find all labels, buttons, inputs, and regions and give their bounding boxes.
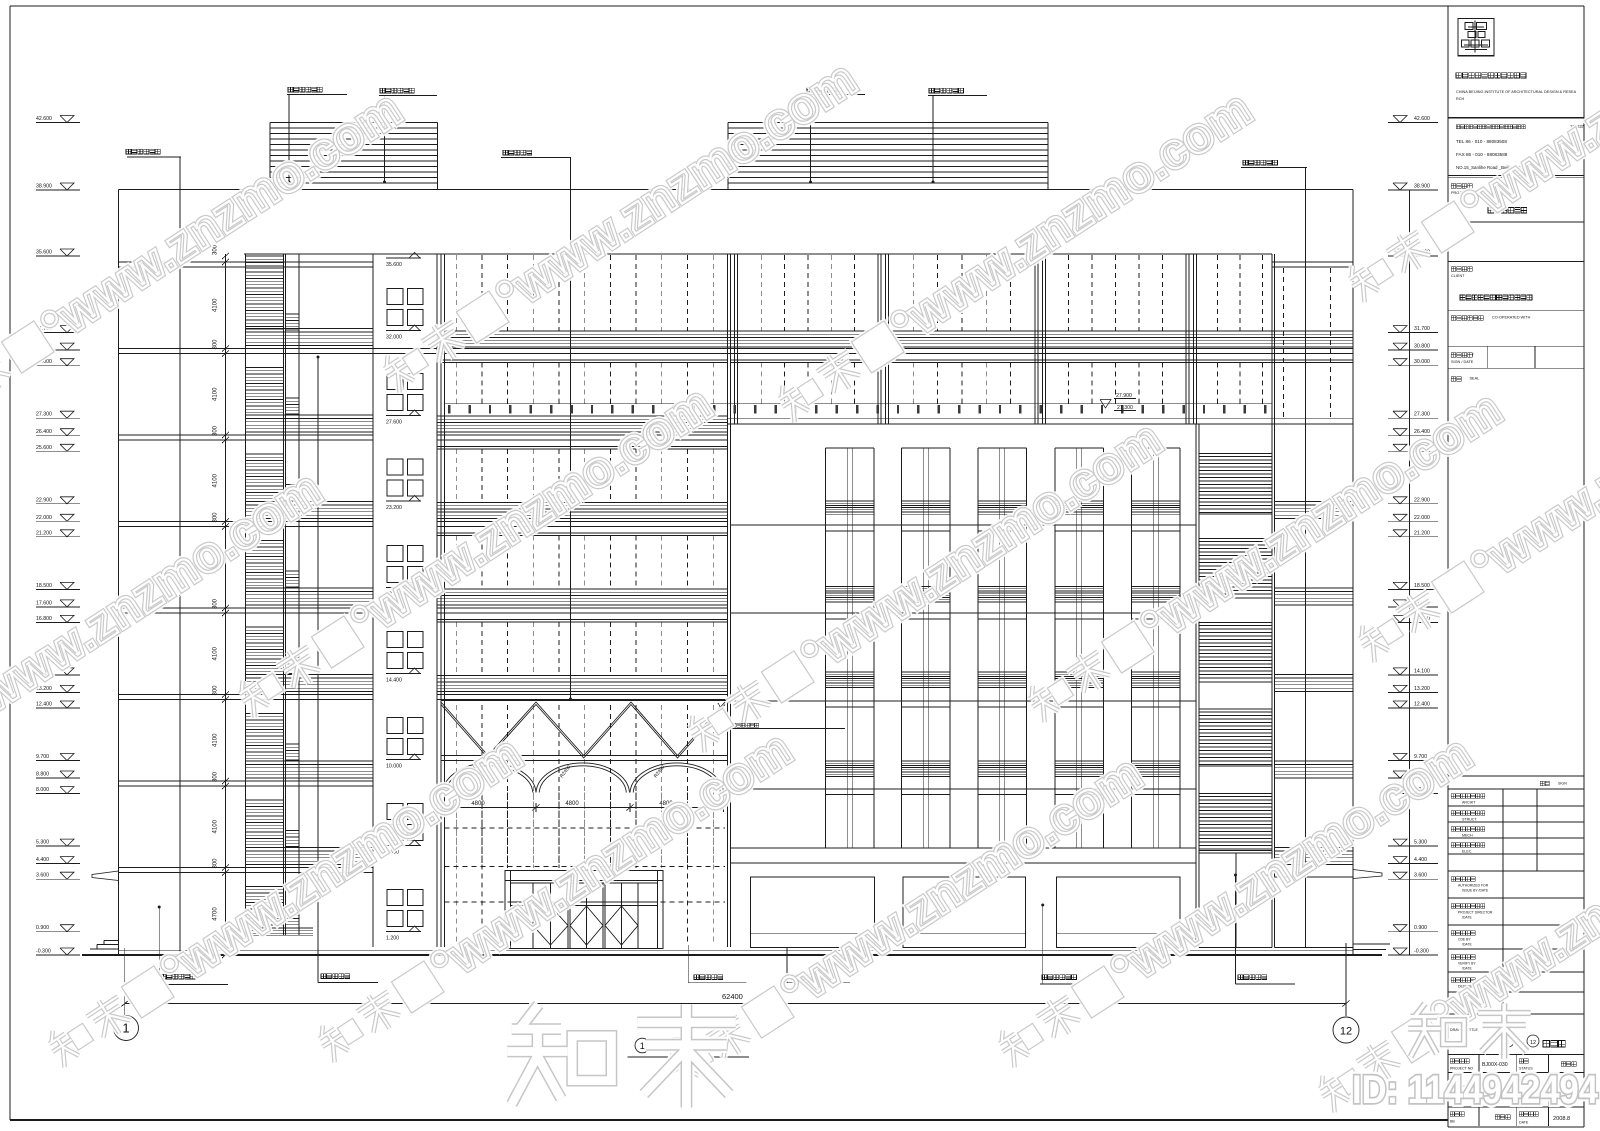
svg-text:27.900: 27.900	[1116, 393, 1132, 399]
svg-text:4100: 4100	[213, 646, 219, 660]
svg-text:25.600: 25.600	[36, 445, 52, 451]
svg-text:23.200: 23.200	[386, 505, 402, 511]
svg-text:SEAL: SEAL	[1470, 377, 1480, 381]
svg-text:SIGN / DATE: SIGN / DATE	[1451, 360, 1474, 364]
svg-text:4800: 4800	[565, 801, 579, 807]
svg-text:3.600: 3.600	[1414, 873, 1427, 879]
svg-text:-0.300: -0.300	[1414, 949, 1429, 955]
svg-text:300: 300	[213, 598, 219, 609]
svg-text:AUTHORIZED FOR: AUTHORIZED FOR	[1458, 884, 1489, 888]
svg-text:5.300: 5.300	[1414, 840, 1427, 846]
svg-text:4100: 4100	[213, 733, 219, 747]
svg-text:32.000: 32.000	[386, 335, 402, 341]
svg-text:2008.8: 2008.8	[1553, 1116, 1570, 1122]
svg-text:SIGN: SIGN	[1558, 782, 1567, 786]
svg-text:CLIENT: CLIENT	[1451, 274, 1465, 278]
svg-text:MECH: MECH	[1462, 834, 1473, 838]
svg-text:12.400: 12.400	[1414, 702, 1430, 708]
svg-text:16.800: 16.800	[36, 616, 52, 622]
svg-text:300: 300	[213, 685, 219, 696]
svg-text:/DATE: /DATE	[1462, 943, 1472, 947]
svg-text:42.600: 42.600	[1414, 116, 1430, 122]
svg-text:22.000: 22.000	[1414, 515, 1430, 521]
svg-text:5.300: 5.300	[36, 840, 49, 846]
svg-text:8.800: 8.800	[36, 772, 49, 778]
svg-text:4100: 4100	[213, 298, 219, 312]
svg-text:18.500: 18.500	[1414, 583, 1430, 589]
svg-text:3.600: 3.600	[36, 873, 49, 879]
svg-text:8.000: 8.000	[36, 787, 49, 793]
svg-text:300: 300	[213, 339, 219, 350]
svg-text:10.000: 10.000	[386, 764, 402, 770]
svg-text:1: 1	[640, 1041, 645, 1051]
svg-text:9.700: 9.700	[36, 754, 49, 760]
svg-text:21.200: 21.200	[36, 530, 52, 536]
svg-text:/DATE: /DATE	[1462, 916, 1472, 920]
svg-text:0.900: 0.900	[1414, 925, 1427, 931]
svg-text:1.200: 1.200	[386, 936, 399, 942]
svg-text:22.000: 22.000	[36, 515, 52, 521]
svg-text:22.900: 22.900	[1414, 497, 1430, 503]
svg-text:17.600: 17.600	[36, 600, 52, 606]
svg-text:-0.300: -0.300	[36, 949, 51, 955]
svg-text:0.900: 0.900	[36, 925, 49, 931]
svg-text:12: 12	[1340, 1026, 1352, 1038]
svg-text:14.100: 14.100	[1414, 668, 1430, 674]
svg-text:42.600: 42.600	[36, 116, 52, 122]
svg-text:300: 300	[213, 425, 219, 436]
svg-text:ELEC.: ELEC.	[1462, 850, 1472, 854]
svg-text:CDE BY: CDE BY	[1458, 938, 1471, 942]
svg-text:4.400: 4.400	[36, 857, 49, 863]
svg-text:CO-OPERATED WITH: CO-OPERATED WITH	[1492, 316, 1531, 320]
svg-text:PROJECT DIRECTOR: PROJECT DIRECTOR	[1458, 911, 1493, 915]
svg-text:300: 300	[213, 771, 219, 782]
svg-text:30.800: 30.800	[1414, 344, 1430, 350]
svg-text:BB: BB	[1450, 1120, 1455, 1124]
svg-text:18.500: 18.500	[36, 583, 52, 589]
svg-text:RCH: RCH	[1456, 97, 1464, 101]
svg-text:ISSUE BY /DATE: ISSUE BY /DATE	[1462, 889, 1489, 893]
svg-text:22.900: 22.900	[36, 497, 52, 503]
svg-text:ID: 1144942494: ID: 1144942494	[1352, 1068, 1599, 1112]
svg-text:12.400: 12.400	[36, 702, 52, 708]
svg-text:TEL 86 - 010 - 88083508: TEL 86 - 010 - 88083508	[1456, 139, 1507, 144]
svg-text:27.600: 27.600	[386, 420, 402, 426]
svg-text:4100: 4100	[213, 473, 219, 487]
svg-text:4.400: 4.400	[1414, 857, 1427, 863]
svg-text:CHINA BEIJING INSTITUTE OF ARC: CHINA BEIJING INSTITUTE OF ARCHITECTURAL…	[1456, 90, 1577, 94]
svg-text:27.300: 27.300	[1117, 405, 1133, 411]
svg-text:62400: 62400	[722, 992, 743, 1001]
svg-text:30.000: 30.000	[1414, 359, 1430, 365]
svg-text:14.400: 14.400	[386, 678, 402, 684]
svg-text:STRUCT.: STRUCT.	[1462, 818, 1477, 822]
svg-text:12: 12	[1530, 1040, 1536, 1046]
svg-text:DATE: DATE	[1519, 1121, 1529, 1125]
svg-text:300: 300	[213, 858, 219, 869]
svg-text:31.700: 31.700	[1414, 326, 1430, 332]
svg-text:27.300: 27.300	[36, 412, 52, 418]
svg-text:38.900: 38.900	[1414, 184, 1430, 190]
svg-text:35.600: 35.600	[36, 250, 52, 256]
svg-text:38.900: 38.900	[36, 184, 52, 190]
svg-text:35.600: 35.600	[386, 262, 402, 268]
svg-text:13.200: 13.200	[1414, 686, 1430, 692]
svg-text:ARCHIT: ARCHIT	[1462, 801, 1476, 805]
svg-text:26.400: 26.400	[36, 429, 52, 435]
svg-text:21.200: 21.200	[1414, 530, 1430, 536]
svg-text:4100: 4100	[213, 387, 219, 401]
svg-text:4100: 4100	[213, 819, 219, 833]
